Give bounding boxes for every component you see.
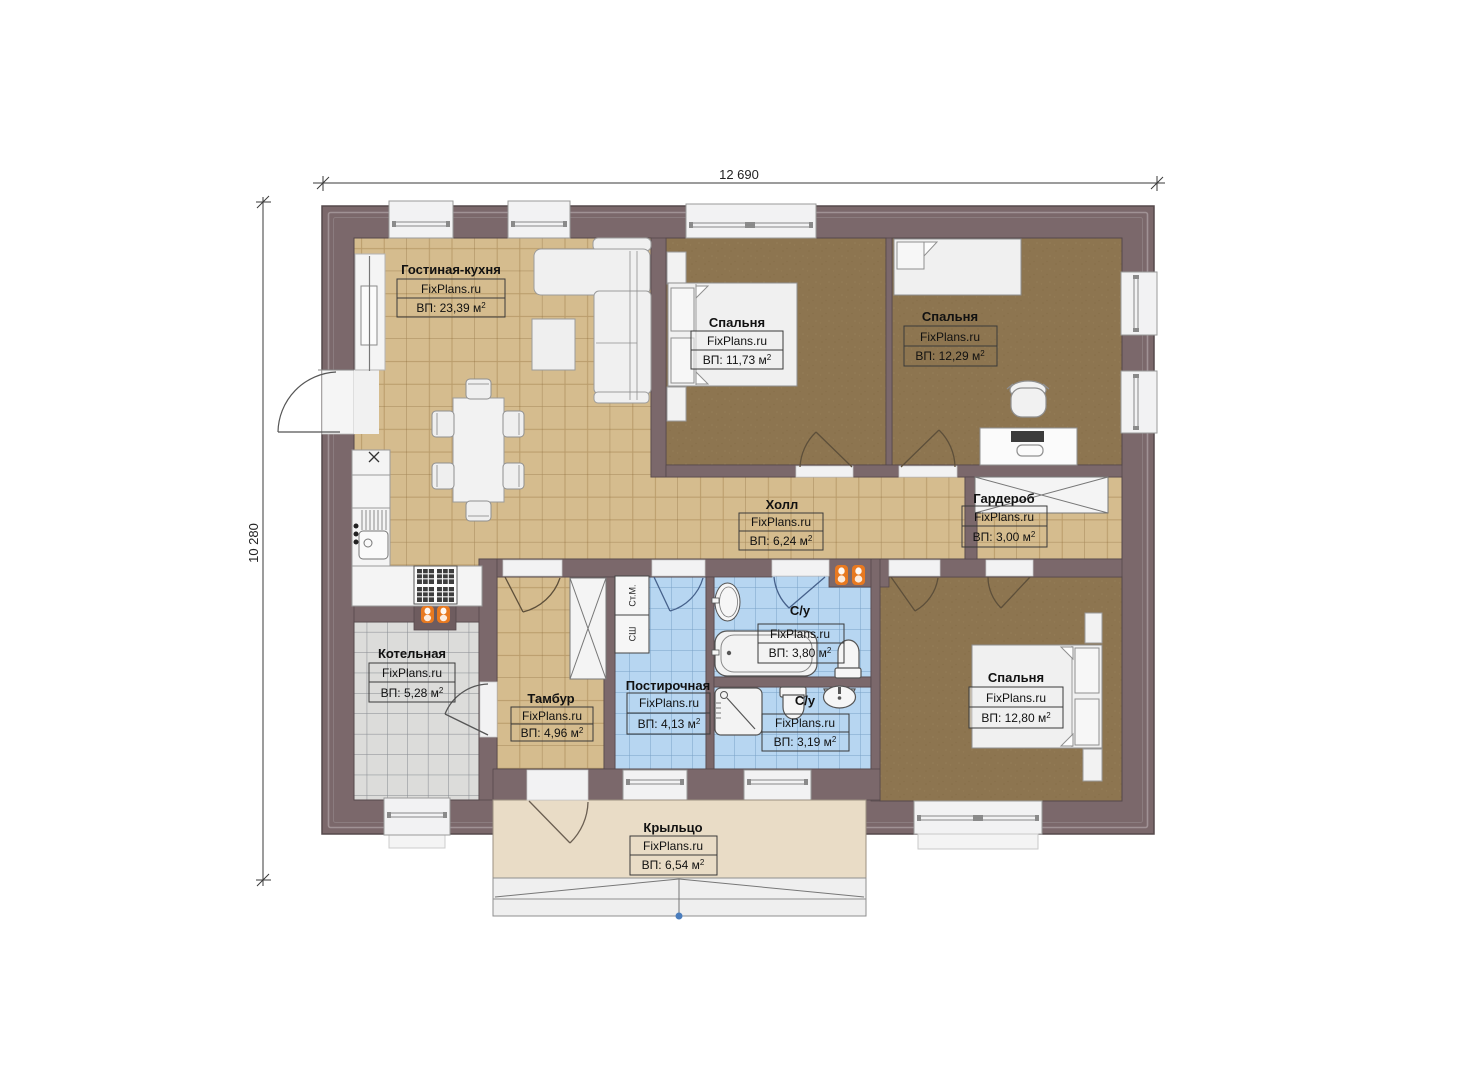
svg-text:С/у: С/у	[790, 603, 811, 618]
svg-text:FixPlans.ru: FixPlans.ru	[382, 666, 442, 680]
svg-text:ВП: 12,29 м2: ВП: 12,29 м2	[915, 349, 985, 363]
svg-text:Спальня: Спальня	[988, 670, 1044, 685]
svg-text:Постирочная: Постирочная	[626, 678, 710, 693]
svg-text:FixPlans.ru: FixPlans.ru	[522, 709, 582, 723]
svg-text:FixPlans.ru: FixPlans.ru	[707, 334, 767, 348]
svg-text:FixPlans.ru: FixPlans.ru	[639, 696, 699, 710]
svg-text:ВП: 4,96 м2: ВП: 4,96 м2	[521, 726, 584, 740]
svg-text:Гостиная-кухня: Гостиная-кухня	[401, 262, 501, 277]
svg-text:FixPlans.ru: FixPlans.ru	[920, 330, 980, 344]
svg-text:С/у: С/у	[795, 693, 816, 708]
svg-text:FixPlans.ru: FixPlans.ru	[770, 627, 830, 641]
svg-text:FixPlans.ru: FixPlans.ru	[775, 716, 835, 730]
svg-text:Гардероб: Гардероб	[973, 491, 1034, 506]
svg-text:10 280: 10 280	[246, 523, 261, 563]
svg-text:FixPlans.ru: FixPlans.ru	[643, 839, 703, 853]
svg-text:ВП: 11,73 м2: ВП: 11,73 м2	[703, 353, 772, 367]
svg-text:12 690: 12 690	[719, 167, 759, 182]
svg-text:Ст.М.: Ст.М.	[628, 584, 638, 606]
svg-text:Тамбур: Тамбур	[527, 691, 574, 706]
svg-text:Спальня: Спальня	[922, 309, 978, 324]
svg-text:Спальня: Спальня	[709, 315, 765, 330]
svg-text:ВП: 6,24 м2: ВП: 6,24 м2	[750, 534, 813, 548]
svg-text:ВП: 3,19 м2: ВП: 3,19 м2	[774, 735, 837, 749]
svg-text:FixPlans.ru: FixPlans.ru	[421, 282, 481, 296]
svg-text:ВП: 3,80 м2: ВП: 3,80 м2	[769, 646, 832, 660]
svg-text:ВП: 3,00 м2: ВП: 3,00 м2	[973, 530, 1036, 544]
svg-text:Холл: Холл	[766, 497, 799, 512]
svg-text:СШ: СШ	[628, 627, 638, 642]
svg-text:FixPlans.ru: FixPlans.ru	[751, 515, 811, 529]
svg-text:ВП: 5,28 м2: ВП: 5,28 м2	[381, 686, 444, 700]
svg-text:ВП: 23,39 м2: ВП: 23,39 м2	[416, 301, 486, 315]
svg-text:FixPlans.ru: FixPlans.ru	[974, 510, 1034, 524]
svg-text:ВП: 4,13 м2: ВП: 4,13 м2	[638, 717, 701, 731]
svg-text:ВП: 6,54 м2: ВП: 6,54 м2	[642, 858, 705, 872]
svg-text:Крыльцо: Крыльцо	[643, 820, 702, 835]
svg-text:FixPlans.ru: FixPlans.ru	[986, 691, 1046, 705]
svg-text:ВП: 12,80 м2: ВП: 12,80 м2	[981, 711, 1051, 725]
svg-text:Котельная: Котельная	[378, 646, 446, 661]
